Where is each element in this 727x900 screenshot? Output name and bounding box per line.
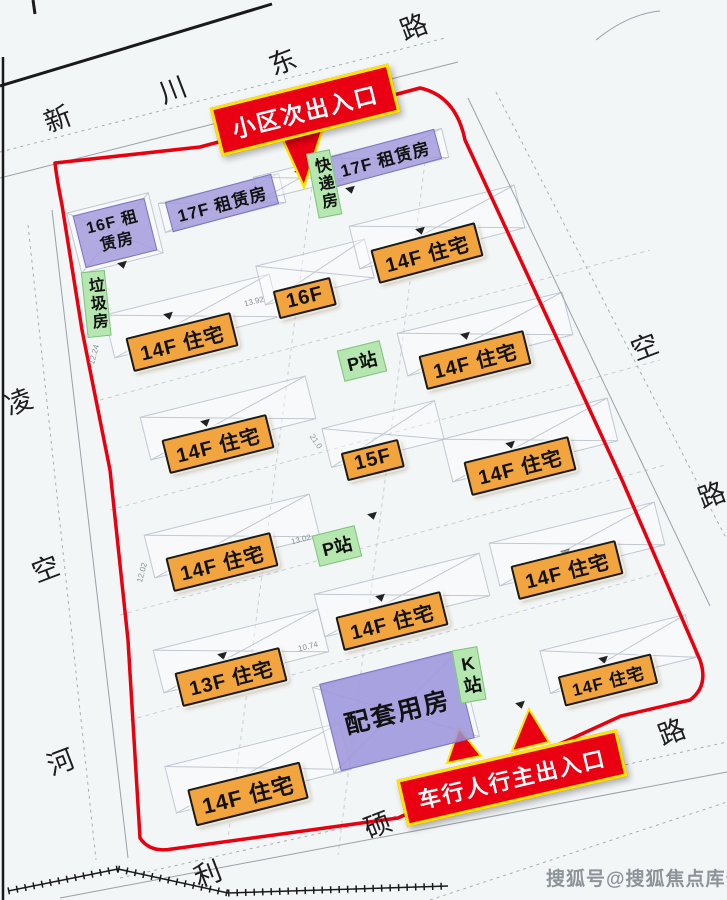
dimension-mark: 21.0 bbox=[308, 433, 324, 451]
facility-label-garbage-room: 垃圾房 bbox=[81, 270, 111, 338]
building-label-residential-8: 14F 住宅 bbox=[510, 540, 623, 600]
building-label-residential-6: 14F 住宅 bbox=[463, 436, 576, 496]
watermark: 搜狐号@搜狐焦点库安站 bbox=[546, 864, 727, 891]
dimension-mark: 13.92 bbox=[243, 295, 265, 309]
dimension-mark: 12.24 bbox=[87, 344, 101, 366]
street-name-left-char-1: 空 bbox=[25, 544, 64, 590]
building-label-residential-7: 14F 住宅 bbox=[165, 532, 278, 592]
building-label-residential-10: 14F 住宅 bbox=[335, 591, 448, 651]
street-name-top-char-2: 东 bbox=[262, 37, 301, 83]
street-name-top-char-3: 路 bbox=[393, 2, 432, 48]
entrance-marker-icon bbox=[515, 701, 526, 710]
building-label-residential-11: 14F 住宅 bbox=[558, 653, 659, 706]
building-label-rental-16f: 16F 租赁房 bbox=[73, 198, 158, 268]
facility-label-p-station-1: P站 bbox=[337, 340, 387, 382]
entrance-marker-icon bbox=[200, 419, 211, 428]
building-label-residential-5: 14F 住宅 bbox=[418, 330, 531, 390]
building-label-rental-17f-left: 17F 租赁房 bbox=[165, 174, 279, 232]
street-name-top-char-1: 川 bbox=[152, 65, 191, 111]
facility-label-p-station-2: P站 bbox=[312, 525, 362, 567]
street-name-top-char-0: 新 bbox=[37, 94, 76, 140]
street-name-left-char-0: 凌 bbox=[0, 377, 38, 423]
road-curve bbox=[596, 11, 660, 40]
building-label-support: 配套用房 bbox=[319, 651, 475, 772]
building-label-residential-4: 15F bbox=[341, 439, 406, 482]
building-label-residential-9: 13F 住宅 bbox=[174, 647, 287, 707]
dimension-mark: 13.02 bbox=[290, 533, 312, 547]
entrance-marker-icon bbox=[367, 512, 378, 521]
street-name-left-char-2: 河 bbox=[40, 737, 79, 783]
building-label-residential-3: 14F 住宅 bbox=[161, 414, 274, 474]
dimension-mark: 12.02 bbox=[135, 562, 149, 584]
street-name-bottom-char-1: 硕 bbox=[357, 800, 396, 846]
entrance-marker-icon bbox=[460, 332, 471, 341]
building-label-residential-2: 14F 住宅 bbox=[370, 222, 483, 284]
secondary-entrance-callout: 小区次出入口 bbox=[210, 63, 401, 156]
building-label-residential-12: 14F 住宅 bbox=[187, 762, 309, 827]
building-label-rental-17f-right: 17F 租赁房 bbox=[328, 129, 442, 187]
entrance-marker-icon bbox=[375, 594, 386, 603]
street-name-bottom-char-0: 利 bbox=[187, 849, 226, 895]
site-plan: 16F 租赁房 17F 租赁房 17F 租赁房 配套用房 快递房 垃圾房 P站 … bbox=[0, 0, 727, 900]
entrance-marker-icon bbox=[117, 261, 128, 270]
dimension-mark: 10.74 bbox=[297, 640, 319, 654]
street-name-right-char-0: 空 bbox=[624, 322, 663, 368]
entrance-marker-icon bbox=[294, 169, 305, 178]
street-name-right-char-1: 路 bbox=[691, 470, 727, 516]
building-label-residential-1: 16F bbox=[273, 277, 338, 320]
building-label-residential-0: 14F 住宅 bbox=[125, 312, 238, 372]
entrance-marker-icon bbox=[163, 312, 174, 321]
street-name-right-char-2: 路 bbox=[651, 707, 690, 753]
entrance-marker-icon bbox=[345, 186, 356, 195]
